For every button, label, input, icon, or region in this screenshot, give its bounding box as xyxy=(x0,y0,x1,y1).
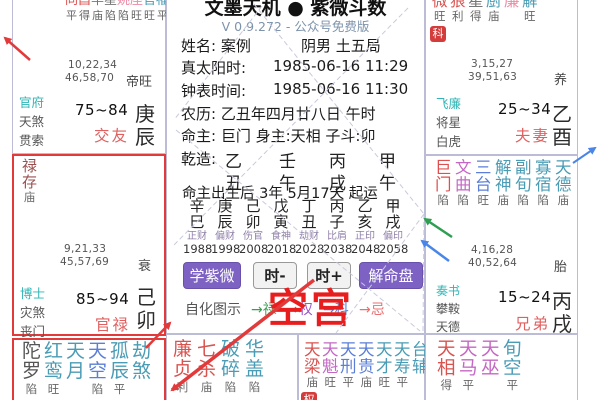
god-label: 飞廉 xyxy=(436,95,461,114)
star-column: 天德庙 xyxy=(555,159,572,207)
star-name: 廉贞 xyxy=(173,340,192,380)
dayun-column[interactable]: 戊寅食神2018 xyxy=(267,198,295,256)
clock-time-value: 1985-06-16 11:30 xyxy=(273,80,408,98)
palace-cell-xiongdi[interactable]: 巨门陷 文曲陷 三台旺 解神庙 副旬陷 寡宿陷 天德庙 4,16,28 40,5… xyxy=(425,155,578,334)
dayun-column[interactable]: 辛巳正财1988 xyxy=(183,198,211,256)
star-name: 天才 xyxy=(376,341,393,375)
star-name: 解神 xyxy=(495,159,512,193)
dayun-column[interactable]: 庚辰偏财1998 xyxy=(211,198,239,256)
annual-ages: 46,58,70 xyxy=(65,72,114,84)
gender-bureau: 阴男 土五局 xyxy=(301,35,381,56)
star-brightness: 陷 xyxy=(535,195,552,207)
palace-name: 交友 xyxy=(94,124,129,146)
star-brightness: 陷 xyxy=(88,384,107,396)
star-name: 解 xyxy=(522,0,538,9)
star-column: 天空陷 xyxy=(88,342,107,395)
palace-age-range: 25~34 xyxy=(498,100,551,118)
annual-ages: 40,52,64 xyxy=(468,257,517,269)
palace-cell-jiaoyou[interactable]: 同平 昌得 羊庙 星陷 姚陷 座旺 官旺 福平 10,22,34 46,58,7… xyxy=(12,0,166,154)
star-brightness: 平 xyxy=(340,377,357,389)
star-column: 文曲陷 xyxy=(455,159,472,207)
star-brightness: 旺 xyxy=(143,10,156,21)
star-name: 文曲 xyxy=(455,159,472,193)
palace-name: 兄弟 xyxy=(515,312,550,334)
solar-time-value: 1985-06-16 11:29 xyxy=(273,57,408,75)
star-name: 星 xyxy=(468,0,484,9)
star-column: 天贵庙 xyxy=(358,341,375,389)
star-column: 昌得 xyxy=(78,0,91,21)
star-brightness: 庙 xyxy=(555,195,572,207)
dayun-column[interactable]: 己卯伤官2008 xyxy=(239,198,267,256)
dayun-stem: 庚 xyxy=(211,198,239,214)
star-name: 星 xyxy=(104,0,117,8)
star-brightness: 得 xyxy=(437,380,456,392)
palace-gods: 博士 灾煞 丧门 xyxy=(20,285,45,341)
star-brightness: 利 xyxy=(450,11,466,23)
dayun-branch: 亥 xyxy=(351,214,379,230)
star-brightness: 平 xyxy=(394,377,411,389)
ganzhi: 己卯 xyxy=(136,286,156,331)
longevity-stage: 胎 xyxy=(554,256,567,275)
star-column: 红鸾旺 xyxy=(44,342,63,395)
star-brightness: 得 xyxy=(468,11,484,23)
longevity-stage: 衰 xyxy=(138,255,151,274)
dayun-year: 2038 xyxy=(323,243,351,256)
annual-ages: 9,21,33 xyxy=(64,243,106,255)
palace-age-range: 75~84 xyxy=(75,101,128,119)
star-name: 姚 xyxy=(117,0,130,8)
palace-cell-guanlu[interactable]: 禄存庙 9,21,33 45,57,69 衰 博士 灾煞 丧门 85~94 官禄… xyxy=(12,154,166,336)
star-name: 微 xyxy=(432,0,448,9)
star-brightness: 旺 xyxy=(432,11,448,23)
ganzhi: 庚辰 xyxy=(135,103,155,148)
star-name: 寡宿 xyxy=(535,159,552,193)
star-name: 三台 xyxy=(475,159,492,193)
star-brightness: 平 xyxy=(65,10,78,21)
star-brightness: 陷 xyxy=(117,10,130,21)
star-brightness: 陷 xyxy=(515,195,532,207)
dayun-year: 1998 xyxy=(211,243,239,256)
star-column: 孤辰平 xyxy=(110,342,129,395)
star-name: 副旬 xyxy=(515,159,532,193)
god-label: 攀鞍 xyxy=(436,300,460,318)
ziwei-chart: 同平 昌得 羊庙 星陷 姚陷 座旺 官旺 福平 10,22,34 46,58,7… xyxy=(0,0,600,400)
star-name: 破碎 xyxy=(221,340,240,380)
star-column: 天魁旺 xyxy=(322,341,339,389)
dayun-stem: 辛 xyxy=(183,198,211,214)
solar-time-label: 真太阳时: xyxy=(181,57,246,78)
star-name: 天马 xyxy=(459,340,478,378)
explain-chart-button[interactable]: 解命盘 xyxy=(359,262,423,289)
star-column: 星陷 xyxy=(104,0,117,21)
star-brightness: 陷 xyxy=(245,382,264,394)
star-name: 狼 xyxy=(450,0,466,9)
god-label: 官府 xyxy=(19,94,44,113)
dayun-year: 2018 xyxy=(267,243,295,256)
dayun-branch: 子 xyxy=(323,214,351,230)
star-brightness: 庙 xyxy=(91,10,104,21)
star-brightness: 得 xyxy=(78,10,91,21)
dayun-stem: 丙 xyxy=(323,198,351,214)
star-column: 厨庙 xyxy=(486,0,502,23)
god-label: 灾煞 xyxy=(20,304,45,323)
star-column: 天才旺 xyxy=(376,341,393,389)
star-brightness: 庙 xyxy=(358,377,375,389)
star-column: 廉 xyxy=(504,0,520,11)
star-brightness: 陷 xyxy=(455,195,472,207)
star-brightness: 庙 xyxy=(22,192,37,204)
star-name: 厨 xyxy=(486,0,502,9)
star-column: 陀罗陷 xyxy=(22,342,41,395)
star-name: 天贵 xyxy=(358,341,375,375)
palace-cell-fuqi[interactable]: 微旺 狼利 星得 厨庙 廉 解旺 科 3,15,27 39,51,63 养 飞廉… xyxy=(425,0,578,155)
palace-cell-bottom-4[interactable]: 天相得 天马平 天巫 旬空平 xyxy=(425,334,578,400)
app-version: V 0.9.272 - 公众号免费版 xyxy=(167,16,424,35)
star-column: 寡宿陷 xyxy=(535,159,552,207)
star-brightness: 利 xyxy=(173,382,192,394)
star-name: 廉 xyxy=(504,0,520,9)
star-brightness: 旺 xyxy=(322,377,339,389)
zihua-legend-label: 自化图示 xyxy=(185,299,241,319)
dayun-branch: 辰 xyxy=(211,214,239,230)
star-brightness: 陷 xyxy=(22,384,41,396)
star-column: 天月 xyxy=(66,342,85,384)
dayun-branch: 巳 xyxy=(183,214,211,230)
star-column: 巨门陷 xyxy=(435,159,452,207)
annual-ages: 10,22,34 xyxy=(68,59,117,71)
palace-gods: 官府 天煞 贯索 xyxy=(19,94,44,150)
star-name: 官 xyxy=(143,0,156,8)
dayun-stem: 甲 xyxy=(379,198,407,214)
dayun-year: 2058 xyxy=(379,243,407,256)
star-name: 昌 xyxy=(78,0,91,8)
hua-ke-badge: 科 xyxy=(430,26,446,42)
star-name: 座 xyxy=(130,0,143,8)
longevity-stage: 帝旺 xyxy=(126,71,152,90)
god-label: 奏书 xyxy=(436,282,460,300)
star-name: 禄存 xyxy=(22,159,37,190)
annual-ages: 3,15,27 xyxy=(471,58,513,70)
dayun-year: 2028 xyxy=(295,243,323,256)
star-name: 天魁 xyxy=(322,341,339,375)
star-column: 天刑平 xyxy=(340,341,357,389)
star-brightness: 旺 xyxy=(44,384,63,396)
lunar-date: 农历: 乙丑年四月廿八日 午时 xyxy=(181,103,376,124)
palace-gods: 飞廉 将星 白虎 xyxy=(436,95,461,151)
ganzhi: 乙酉 xyxy=(552,103,572,148)
star-name: 劫煞 xyxy=(132,342,151,382)
star-column: 天相得 xyxy=(437,340,456,392)
clock-time-label: 钟表时间: xyxy=(181,80,246,101)
star-name: 天巫 xyxy=(481,340,500,378)
star-column: 天寿平 xyxy=(394,341,411,389)
palace-age-range: 15~24 xyxy=(498,288,551,306)
star-column: 同平 xyxy=(65,0,78,21)
star-column: 天巫 xyxy=(481,340,500,380)
star-column: 姚陷 xyxy=(117,0,130,21)
annual-ages: 4,16,28 xyxy=(471,244,513,256)
star-column: 廉贞利 xyxy=(173,340,192,393)
star-brightness: 庙 xyxy=(304,377,321,389)
star-brightness: 陷 xyxy=(435,195,452,207)
star-brightness: 庙 xyxy=(197,382,216,394)
name-field: 姓名: 案例 xyxy=(181,35,251,56)
star-name: 同 xyxy=(65,0,78,8)
star-brightness: 旺 xyxy=(376,377,393,389)
star-name: 红鸾 xyxy=(44,342,63,382)
palace-name: 官禄 xyxy=(95,313,130,335)
dayun-stem: 戊 xyxy=(267,198,295,214)
star-brightness: 旺 xyxy=(475,195,492,207)
star-name: 七杀 xyxy=(197,340,216,380)
star-column: 星得 xyxy=(468,0,484,23)
longevity-stage: 养 xyxy=(554,69,567,88)
god-label: 贯索 xyxy=(19,132,44,151)
empty-palace-annotation: 空宫 xyxy=(268,276,354,334)
star-name: 天寿 xyxy=(394,341,411,375)
star-name: 旬空 xyxy=(503,340,522,378)
star-column: 天马平 xyxy=(459,340,478,392)
god-label: 将星 xyxy=(436,114,461,133)
dayun-column[interactable]: 乙亥正印2048 xyxy=(351,198,379,256)
ganzhi: 丙戌 xyxy=(552,290,572,335)
star-column: 羊庙 xyxy=(91,0,104,21)
star-brightness: 旺 xyxy=(522,11,538,23)
palace-cell-bottom-2[interactable]: 廉贞利 七杀庙 破碎陷 华盖陷 xyxy=(166,334,298,400)
dayun-stem: 己 xyxy=(239,198,267,214)
star-column: 破碎陷 xyxy=(221,340,240,393)
dayun-year: 1988 xyxy=(183,243,211,256)
star-brightness: 平 xyxy=(459,380,478,392)
palace-age-range: 85~94 xyxy=(76,290,129,308)
star-name: 天梁 xyxy=(304,341,321,375)
star-name: 孤辰 xyxy=(110,342,129,382)
dayun-column[interactable]: 甲戌偏印2058 xyxy=(379,198,407,256)
god-label: 天煞 xyxy=(19,113,44,132)
annual-ages: 39,51,63 xyxy=(468,71,517,83)
star-name: 巨门 xyxy=(435,159,452,193)
star-column: 解神庙 xyxy=(495,159,512,207)
star-column: 官旺 xyxy=(143,0,156,21)
dayun-stem: 乙 xyxy=(351,198,379,214)
bazi-branch: 午 xyxy=(379,169,396,194)
star-brightness: 庙 xyxy=(495,195,512,207)
star-column: 七杀庙 xyxy=(197,340,216,393)
dayun-column[interactable]: 丙子比肩2038 xyxy=(323,198,351,256)
dayun-stem: 丁 xyxy=(295,198,323,214)
dayun-branch: 卯 xyxy=(239,214,267,230)
annual-ages: 45,57,69 xyxy=(60,256,109,268)
palace-cell-bottom-left[interactable]: 陀罗陷 红鸾旺 天月 天空陷 孤辰平 劫煞 xyxy=(12,338,166,400)
star-name: 天空 xyxy=(88,342,107,382)
dayun-branch: 寅 xyxy=(267,214,295,230)
dayun-year: 2008 xyxy=(239,243,267,256)
star-brightness: 平 xyxy=(503,380,522,392)
star-brightness: 旺 xyxy=(130,10,143,21)
star-column: 禄存庙 xyxy=(22,159,37,204)
star-brightness: 平 xyxy=(110,384,129,396)
star-column: 天梁庙 xyxy=(304,341,321,389)
star-column: 副旬陷 xyxy=(515,159,532,207)
god-label: 白虎 xyxy=(436,133,461,152)
star-column: 三台旺 xyxy=(475,159,492,207)
star-name: 天刑 xyxy=(340,341,357,375)
star-column: 劫煞 xyxy=(132,342,151,384)
dayun-branch: 戌 xyxy=(379,214,407,230)
star-name: 天月 xyxy=(66,342,85,382)
star-name: 华盖 xyxy=(245,340,264,380)
star-column: 华盖陷 xyxy=(245,340,264,393)
star-name: 天德 xyxy=(555,159,572,193)
star-brightness: 陷 xyxy=(104,10,117,21)
star-column: 旬空平 xyxy=(503,340,522,392)
hua-quan-badge: 权 xyxy=(301,392,317,400)
star-brightness: 陷 xyxy=(221,382,240,394)
palace-cell-bottom-3[interactable]: 天梁庙 天魁旺 天刑平 天贵庙 天才旺 天寿平 台辅 权 xyxy=(298,334,425,400)
palace-name: 夫妻 xyxy=(515,124,550,146)
star-column: 座旺 xyxy=(130,0,143,21)
star-column: 狼利 xyxy=(450,0,466,23)
god-label: 博士 xyxy=(20,285,45,304)
zihua-ji: →忌 xyxy=(359,299,385,319)
star-column: 微旺 xyxy=(432,0,448,23)
learn-ziwei-button[interactable]: 学紫微 xyxy=(183,262,241,289)
star-name: 陀罗 xyxy=(22,342,41,382)
star-name: 天相 xyxy=(437,340,456,378)
life-masters: 命主: 巨门 身主:天相 子斗:卯 xyxy=(181,125,375,146)
dayun-branch: 丑 xyxy=(295,214,323,230)
star-brightness: 庙 xyxy=(486,11,502,23)
dayun-column[interactable]: 丁丑劫财2028 xyxy=(295,198,323,256)
palace-gods: 奏书 攀鞍 天德 xyxy=(436,282,460,336)
star-name: 羊 xyxy=(91,0,104,8)
bazi-label: 乾造: xyxy=(181,148,216,169)
dayun-year: 2048 xyxy=(351,243,379,256)
star-column: 解旺 xyxy=(522,0,538,23)
